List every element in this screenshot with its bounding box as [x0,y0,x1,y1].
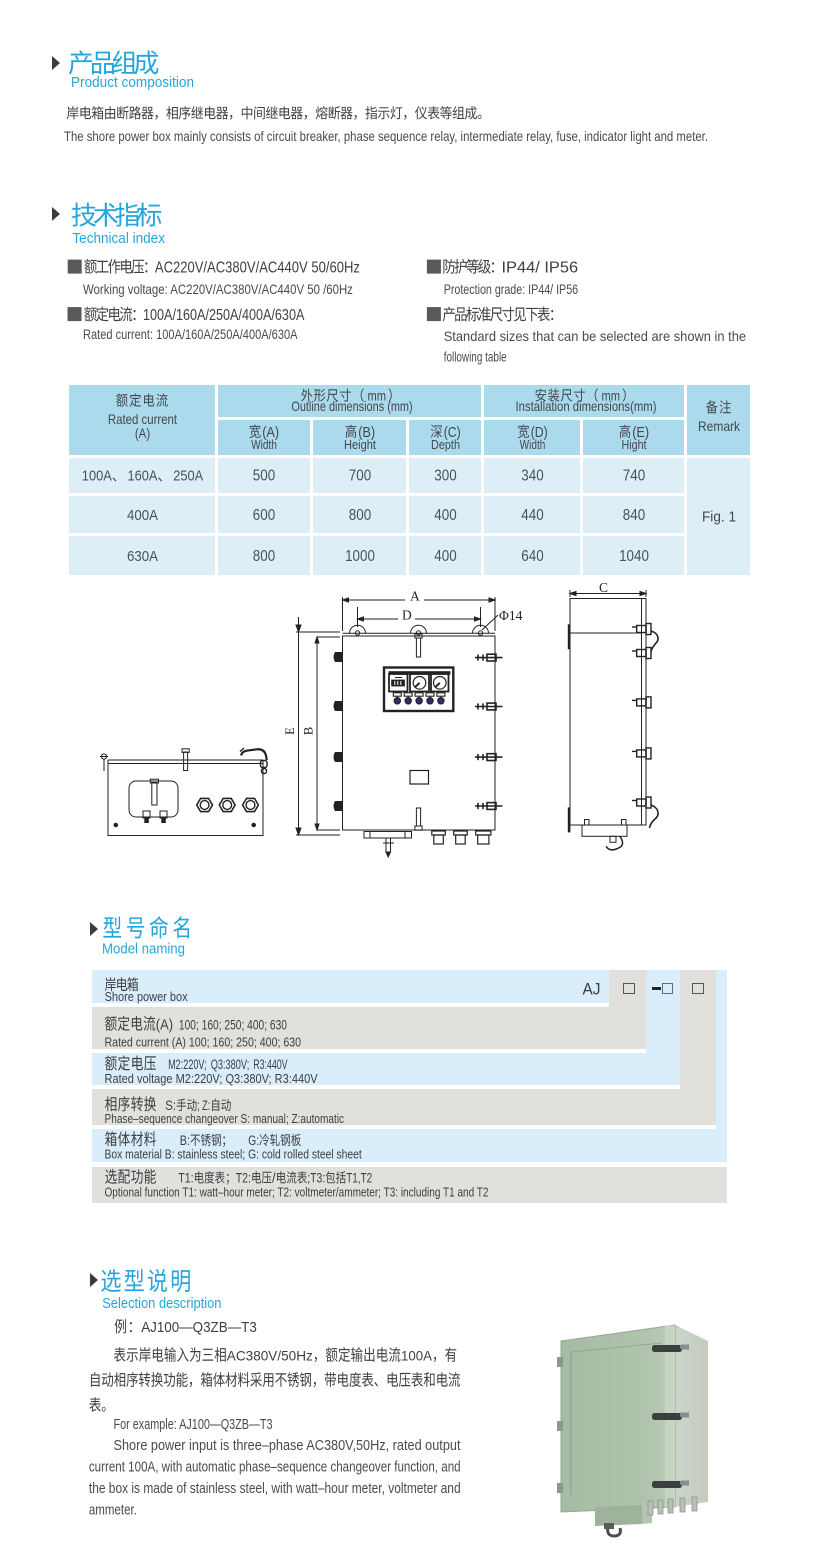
svg-text:T1,T2: T1,T2 [346,1171,372,1186]
svg-text:following table: following table [444,349,507,365]
svg-text:Depth: Depth [431,437,460,452]
svg-text:400A: 400A [127,507,158,524]
svg-text:Phase–sequence changeover S:: Phase–sequence changeover S: manual; Z:a… [105,1111,345,1126]
svg-text:Standard sizes that can be: Standard sizes that can be selected are … [444,328,747,344]
svg-text:T1:: T1: [178,1171,193,1186]
svg-text:340: 340 [521,468,543,485]
svg-text:the box is made of stainless s: the box is made of stainless steel, with… [89,1481,461,1497]
svg-text:Rated current: 100A/160A/250A/: Rated current: 100A/160A/250A/400A/630A [83,326,298,342]
svg-text:100A: 100A [82,468,112,485]
svg-text:100A: 100A [401,1348,433,1364]
svg-text:AJ: AJ [583,980,601,998]
svg-text:Outline dimensions (mm): Outline dimensions (mm) [291,398,412,414]
svg-text:Protection grade: IP44/ IP56: Protection grade: IP44/ IP56 [444,281,579,297]
svg-text:500: 500 [253,468,275,485]
svg-text:160A: 160A [128,468,158,485]
svg-text:Remark: Remark [698,418,741,434]
svg-text:Technical index: Technical index [72,230,165,247]
svg-text:IP44/ IP56: IP44/ IP56 [502,259,579,276]
svg-text:(A): (A) [135,425,150,441]
svg-text:Fig. 1: Fig. 1 [702,509,736,526]
svg-text:640: 640 [521,548,543,565]
svg-text:Rated current (A) 100; 160; 25: Rated current (A) 100; 160; 250; 400; 63… [105,1034,302,1049]
svg-text:Shore power box: Shore power box [105,989,188,1004]
svg-text:AC380V/50Hz: AC380V/50Hz [227,1348,313,1364]
svg-text:1000: 1000 [345,548,375,565]
svg-text:Working voltage: AC220V/AC380V: Working voltage: AC220V/AC380V/AC440V 50… [83,281,353,297]
svg-text:T2:: T2: [236,1171,251,1186]
svg-text:840: 840 [623,507,645,524]
svg-text:800: 800 [349,507,371,524]
svg-text:300: 300 [434,468,456,485]
svg-text:For example: AJ100—Q3ZB—T3: For example: AJ100—Q3ZB—T3 [114,1416,273,1433]
svg-text:250A: 250A [173,468,203,485]
svg-text:1040: 1040 [619,548,649,565]
svg-text:/: / [272,1171,276,1186]
svg-text:(A): (A) [156,1017,173,1034]
svg-text:440: 440 [521,507,543,524]
svg-text:Height: Height [344,437,376,452]
svg-text:800: 800 [253,548,275,565]
svg-text:AJ100—Q3ZB—T3: AJ100—Q3ZB—T3 [141,1319,257,1336]
svg-text:;T3:: ;T3: [307,1171,325,1186]
svg-text:current 100A, with automatic p: current 100A, with automatic phase–seque… [89,1460,461,1476]
svg-text:Width: Width [520,437,546,452]
svg-text:400: 400 [434,548,456,565]
svg-text:Installation dimensions(mm): Installation dimensions(mm) [516,398,657,414]
svg-text:700: 700 [349,468,371,485]
svg-text:The shore power box mainly con: The shore power box mainly consists of c… [64,128,708,144]
svg-text:Box material B: stainless st: Box material B: stainless steel; G: cold… [105,1146,363,1161]
svg-text:Width: Width [251,437,277,452]
svg-text:Rated voltage M2:220V; Q3:38: Rated voltage M2:220V; Q3:380V; R3:440V [105,1071,318,1086]
svg-text:740: 740 [623,468,645,485]
svg-text:100; 160; 250; 400; 630: 100; 160; 250; 400; 630 [179,1018,287,1033]
svg-text:Optional function T1: watt–ho: Optional function T1: watt–hour meter; T… [105,1185,489,1200]
svg-text:600: 600 [253,507,275,524]
svg-text:Model naming: Model naming [102,941,185,958]
svg-text:ammeter.: ammeter. [89,1503,137,1519]
svg-text:Hight: Hight [622,437,647,452]
svg-text:AC220V/AC380V/AC440V 50/60Hz: AC220V/AC380V/AC440V 50/60Hz [155,259,360,276]
svg-text:100A/160A/250A/400A/630A: 100A/160A/250A/400A/630A [143,307,305,324]
svg-text:Shore power input is three: Shore power input is three–phase AC380V,… [114,1438,461,1454]
svg-text:Product composition: Product composition [71,74,194,91]
svg-text:630A: 630A [127,548,158,565]
svg-text:Selection description: Selection description [102,1295,221,1312]
svg-text:400: 400 [434,507,456,524]
